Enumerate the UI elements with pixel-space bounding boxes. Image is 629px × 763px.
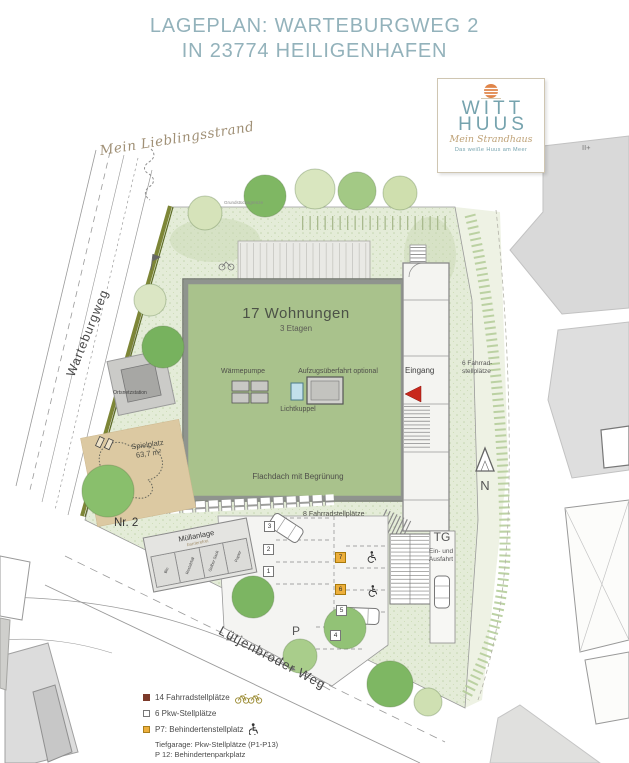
elevator-label: Aufzugsüberfahrt optional [296, 368, 380, 375]
parking-stall-3: 3 [264, 521, 275, 532]
legend-swatch-outline [143, 710, 150, 717]
legend-footnote-line2: P 12: Behindertenparkplatz [155, 750, 278, 760]
legend-swatch-darkred [143, 694, 150, 701]
legend-row-disabled: P7: Behindertenstellplatz [143, 723, 278, 735]
bike-right-line1: 6 Fahrrad- [462, 360, 506, 368]
parking-stall-4: 4 [330, 630, 341, 641]
logo-tagline: Das weiße Huus am Meer [455, 147, 527, 153]
car [435, 576, 450, 608]
witt-huus-logo: WITT HUUS Mein Strandhaus Das weiße Huus… [437, 78, 545, 173]
legend-label-bikes: 14 Fahrradstellplätze [155, 693, 230, 702]
legend-label-disabled: P7: Behindertenstellplatz [155, 725, 244, 734]
parking-stall-2: 2 [263, 544, 274, 555]
bike-right-label: 6 Fahrrad- stellplätze [462, 360, 506, 375]
tg-sublabel: Ein- und Ausfahrt [422, 548, 460, 564]
parking-stall-1: 1 [263, 566, 274, 577]
roof-label: Flachdach mit Begrünung [248, 472, 348, 481]
page-title: LAGEPLAN: WARTEBURGWEG 2 IN 23774 HEILIG… [0, 14, 629, 64]
tg-ramp [390, 534, 430, 604]
neighbor-storeys-label: II+ [582, 143, 591, 152]
grid-station-label: Ortsnetzstation [101, 390, 159, 396]
beach-path-squiggle [145, 149, 154, 200]
parking-stall-7: 7 [335, 552, 346, 563]
legend-swatch-orange [143, 726, 150, 733]
bike-bottom-label: 8 Fahrradstellplätze [303, 511, 364, 518]
page-title-line2: IN 23774 HEILIGENHAFEN [0, 39, 629, 64]
parking-stall-5: 5 [336, 605, 347, 616]
building-label-block: 17 Wohnungen 3 Etagen [196, 305, 396, 333]
legend: 14 Fahrradstellplätze 6 Pkw-Stellplätze … [143, 691, 278, 759]
terrace-strip [238, 241, 370, 281]
entrance-tower [403, 263, 449, 531]
site-plan-page: LAGEPLAN: WARTEBURGWEG 2 IN 23774 HEILIG… [0, 0, 629, 763]
building-storeys: 3 Etagen [196, 324, 396, 333]
building-headline: 17 Wohnungen [196, 305, 396, 322]
skylight-label: Lichtkuppel [272, 406, 324, 413]
elevator-block [307, 377, 343, 404]
heat-pump-label: Wärmepumpe [213, 368, 273, 375]
boundary-label: Grundstücksgrenze [224, 200, 263, 205]
parking-stall-6: 6 [335, 584, 346, 595]
legend-footnote-line1: Tiefgarage: Pkw-Stellplätze (P1-P13) [155, 740, 278, 750]
bike-right-line2: stellplätze [462, 368, 506, 376]
legend-label-cars: 6 Pkw-Stellplätze [155, 709, 216, 718]
logo-script-line: Mein Strandhaus [449, 134, 532, 145]
legend-row-bikes: 14 Fahrradstellplätze [143, 691, 278, 704]
legend-footnote: Tiefgarage: Pkw-Stellplätze (P1-P13) P 1… [155, 740, 278, 759]
bicycles-icon [235, 691, 263, 704]
tg-label: TG [429, 530, 455, 544]
skylight-block [291, 383, 303, 400]
wheelchair-icon [249, 723, 259, 735]
house-number-label: Nr. 2 [114, 517, 138, 529]
compass-label: N [474, 478, 496, 493]
waste-bin: Papier [223, 539, 252, 573]
entrance-label: Eingang [405, 366, 434, 375]
page-title-line1: LAGEPLAN: WARTEBURGWEG 2 [0, 14, 629, 39]
logo-brand-line2: HUUS [454, 117, 528, 132]
legend-row-cars: 6 Pkw-Stellplätze [143, 709, 278, 718]
parking-letter: P [292, 624, 300, 638]
